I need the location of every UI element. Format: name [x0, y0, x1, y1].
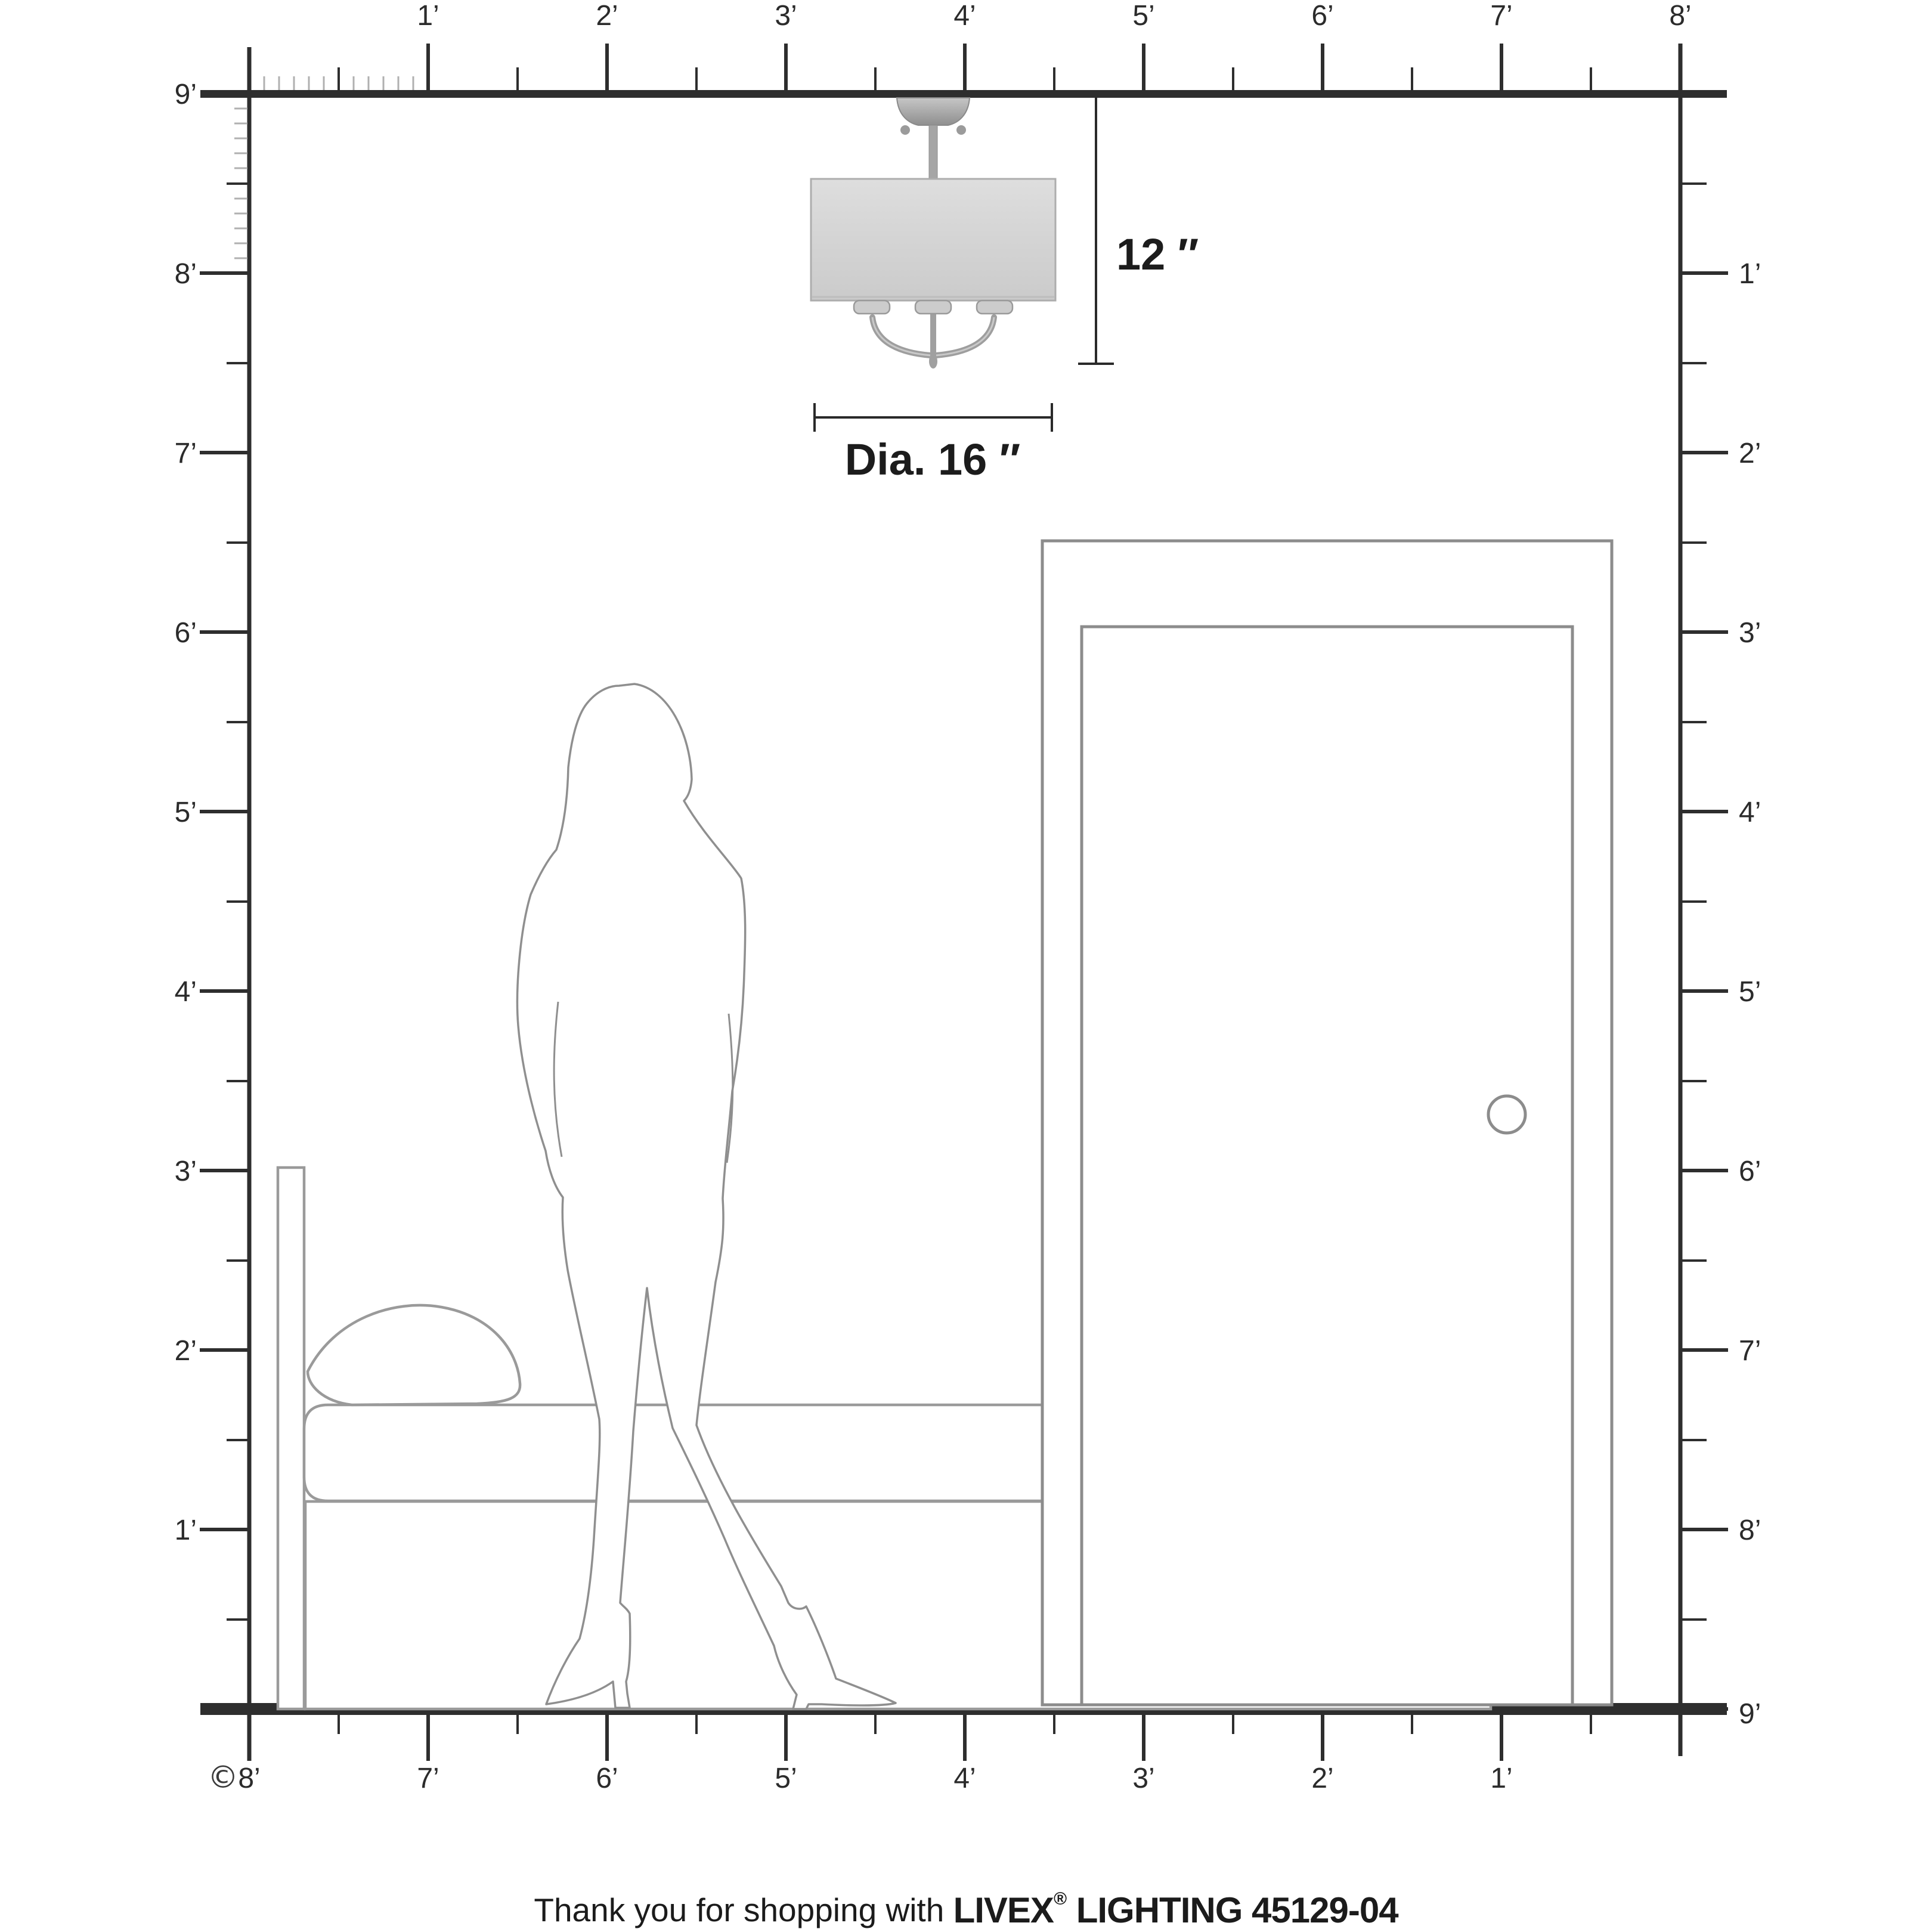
right-ruler-labels: 1’ 2’ 3’ 4’ 5’ 6’ 7’ 8’ 9’ [1739, 258, 1761, 1730]
ruler-label: 2’ [1739, 438, 1761, 469]
ruler-label: 3’ [1132, 1763, 1154, 1794]
ruler-label: 1’ [175, 1515, 197, 1546]
bottom-ruler-labels: 8’ 7’ 6’ 5’ 4’ 3’ 2’ 1’ [238, 1763, 1512, 1794]
ruler-label: 3’ [1739, 617, 1761, 649]
ruler-label: 2’ [1311, 1763, 1333, 1794]
ruler-label: 7’ [175, 438, 197, 469]
fixture-center-finial [929, 354, 937, 369]
ruler-label: 9’ [1739, 1698, 1761, 1730]
ruler-label: 7’ [417, 1763, 439, 1794]
ruler-label: 7’ [1490, 0, 1512, 32]
registered-trademark-icon: ® [1054, 1889, 1067, 1909]
door-knob [1488, 1096, 1525, 1133]
bed-pillow [308, 1305, 520, 1405]
ceiling-line [200, 90, 1727, 98]
bottom-ruler [339, 1715, 1591, 1761]
ruler-label: 4’ [953, 1763, 976, 1794]
ruler-label: 4’ [1739, 797, 1761, 828]
ruler-label: 6’ [596, 1763, 618, 1794]
left-ruler [200, 109, 247, 1620]
top-ruler-labels: 1’ 2’ 3’ 4’ 5’ 6’ 7’ 8’ [417, 0, 1691, 32]
ruler-label: 1’ [1490, 1763, 1512, 1794]
ruler-label: 5’ [775, 1763, 797, 1794]
ruler-label: 5’ [1132, 0, 1154, 32]
ruler-label: 3’ [175, 1156, 197, 1187]
bed-headboard [278, 1168, 304, 1709]
ruler-label: 6’ [175, 617, 197, 649]
height-dimension [1078, 98, 1114, 364]
footer-model-number: LIGHTING 45129-04 [1067, 1890, 1398, 1931]
ceiling-light-fixture [811, 98, 1055, 369]
door-panel [1082, 627, 1572, 1705]
ruler-label: 5’ [175, 797, 197, 828]
fixture-stem [929, 125, 937, 180]
ruler-label: 6’ [1739, 1156, 1761, 1187]
ruler-label: 8’ [238, 1763, 260, 1794]
footer: Thank you for shopping with LIVEX® LIGHT… [0, 1877, 1932, 1932]
ruler-label: 6’ [1311, 0, 1333, 32]
ruler-label: 4’ [175, 976, 197, 1008]
footer-thanks-text: Thank you for shopping with [534, 1891, 953, 1929]
fixture-canopy [897, 98, 970, 125]
ruler-label: 3’ [775, 0, 797, 32]
bobeche-right [977, 301, 1013, 314]
left-ruler-labels: 9’ 8’ 7’ 6’ 5’ 4’ 3’ 2’ 1’ [175, 79, 197, 1546]
ruler-label: 1’ [417, 0, 439, 32]
bobeche-center [915, 301, 951, 314]
drum-shade [811, 179, 1055, 301]
fixture-arm-left-highlight [872, 317, 931, 355]
scale-diagram: 1’ 2’ 3’ 4’ 5’ 6’ 7’ 8’ 9’ 8’ 7’ 6’ 5’ 4… [0, 0, 1932, 1932]
door [1042, 541, 1612, 1705]
footer-brand: LIVEX [953, 1890, 1054, 1931]
right-ruler [1682, 184, 1728, 1709]
ruler-label: 8’ [175, 258, 197, 290]
diagram-page: 1’ 2’ 3’ 4’ 5’ 6’ 7’ 8’ 9’ 8’ 7’ 6’ 5’ 4… [0, 0, 1932, 1932]
diameter-dimension-label: Dia. 16 ″ [845, 435, 1021, 484]
height-dimension-label: 12 ″ [1116, 230, 1199, 279]
ruler-label: 2’ [596, 0, 618, 32]
copyright-symbol: © [208, 1760, 239, 1795]
canopy-finial-left [900, 125, 910, 135]
ruler-label: 7’ [1739, 1335, 1761, 1367]
ruler-label: 5’ [1739, 976, 1761, 1008]
ruler-label: 1’ [1739, 258, 1761, 290]
ruler-label: 8’ [1739, 1515, 1761, 1546]
ruler-label: 9’ [175, 79, 197, 110]
bobeche-left [854, 301, 890, 314]
top-ruler [264, 44, 1591, 90]
canopy-finial-right [956, 125, 966, 135]
fixture-arm-right-highlight [936, 317, 994, 355]
ruler-label: 8’ [1669, 0, 1691, 32]
diameter-dimension [815, 403, 1052, 432]
ruler-label: 4’ [953, 0, 976, 32]
ruler-label: 2’ [175, 1335, 197, 1367]
fixture-bobeches [854, 301, 1013, 314]
